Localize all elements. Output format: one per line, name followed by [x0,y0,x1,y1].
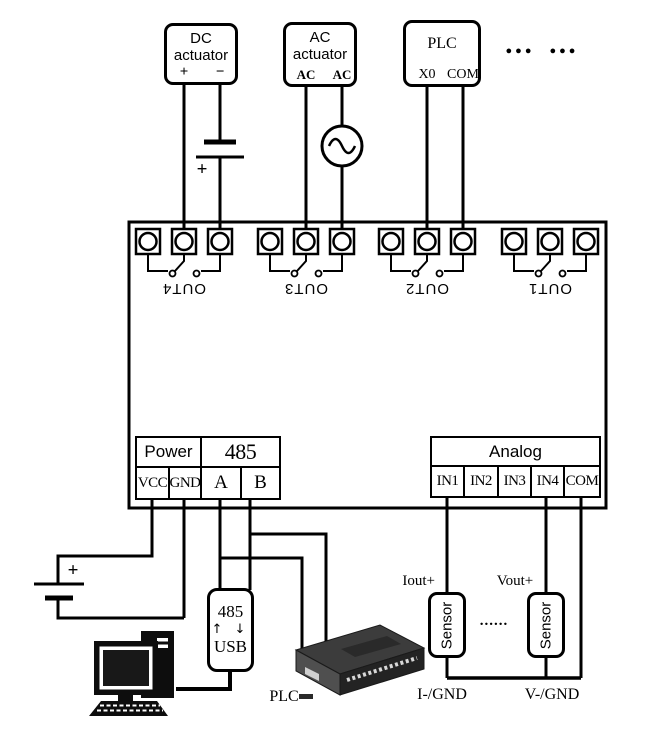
usb-cable-wire [176,672,230,689]
dc-battery-symbol [196,142,244,157]
dc-plus-terminal-label: + [180,64,189,81]
terminal-in4: IN4 [532,467,565,496]
rs485-usb-converter-box: 485 ↑ ↓ USB [207,588,254,672]
current-sensor-label: Sensor [439,601,456,649]
voltage-sensor-label: Sensor [538,601,555,649]
plc-device-image [296,625,424,699]
terminal-in3: IN3 [499,467,532,496]
dc-minus-terminal-label: − [216,64,225,81]
power-battery-plus-label: + [62,561,84,581]
more-devices-ellipsis: ●●● ●●● [500,45,584,57]
relay-contact-out1 [514,254,586,277]
i-minus-gnd-label: I-/GND [410,686,474,704]
converter-arrows-icon: ↑ ↓ [212,623,250,637]
plc-device-label: PLC [262,688,306,706]
ac-actuator-box: AC actuator AC AC [283,22,357,87]
terminal-vcc: VCC [137,468,170,498]
relay-contact-out3 [270,254,342,277]
out2-label: OUT2 [397,279,457,297]
more-sensors-ellipsis: ...... [470,613,518,630]
ac-source-symbol [322,126,362,166]
current-sensor-box: Sensor [428,592,466,658]
ac-left-terminal-label: AC [297,67,316,83]
v-minus-gnd-label: V-/GND [520,686,584,704]
iout-plus-label: Iout+ [385,573,435,590]
computer-icon [89,631,174,716]
analog-header: Analog [432,438,599,467]
plc-x0-terminal-label: X0 [418,67,435,83]
plc-top-label: PLC [406,35,478,53]
power-battery-symbol [34,584,84,598]
terminal-a: A [202,468,242,498]
analog-terminal-table: Analog IN1 IN2 IN3 IN4 COM [430,436,601,498]
dc-battery-plus-label: + [191,160,213,180]
plc-top-wires [427,87,463,229]
terminal-in1: IN1 [432,467,465,496]
relay-contact-out2 [391,254,463,277]
terminal-in2: IN2 [465,467,499,496]
ac-actuator-label: AC actuator [286,29,354,64]
vout-plus-label: Vout+ [488,573,542,590]
converter-usb-label: USB [214,638,247,657]
power-header: Power [137,438,202,468]
dc-actuator-box: DC actuator + − [164,23,238,85]
rs485-header: 485 [202,438,279,468]
power-485-terminal-table: Power 485 VCC GND A B [135,436,281,500]
voltage-sensor-box: Sensor [527,592,565,658]
terminal-gnd: GND [170,468,202,498]
out4-label: OUT4 [154,279,214,297]
out3-label: OUT3 [276,279,336,297]
terminal-blocks [136,229,598,254]
plc-com-terminal-label: COM [447,67,479,83]
wiring-diagram: DC actuator + − AC actuator AC AC PLC X0… [0,0,658,754]
relay-contact-out4 [148,254,220,277]
out1-label: OUT1 [520,279,580,297]
plc-top-box: PLC X0 COM [403,20,481,87]
dc-actuator-label: DC actuator [167,30,235,65]
power-supply-wires [58,500,184,618]
terminal-b: B [242,468,279,498]
terminal-com: COM [565,467,599,496]
ac-right-terminal-label: AC [333,67,352,83]
converter-485-label: 485 [218,603,244,622]
